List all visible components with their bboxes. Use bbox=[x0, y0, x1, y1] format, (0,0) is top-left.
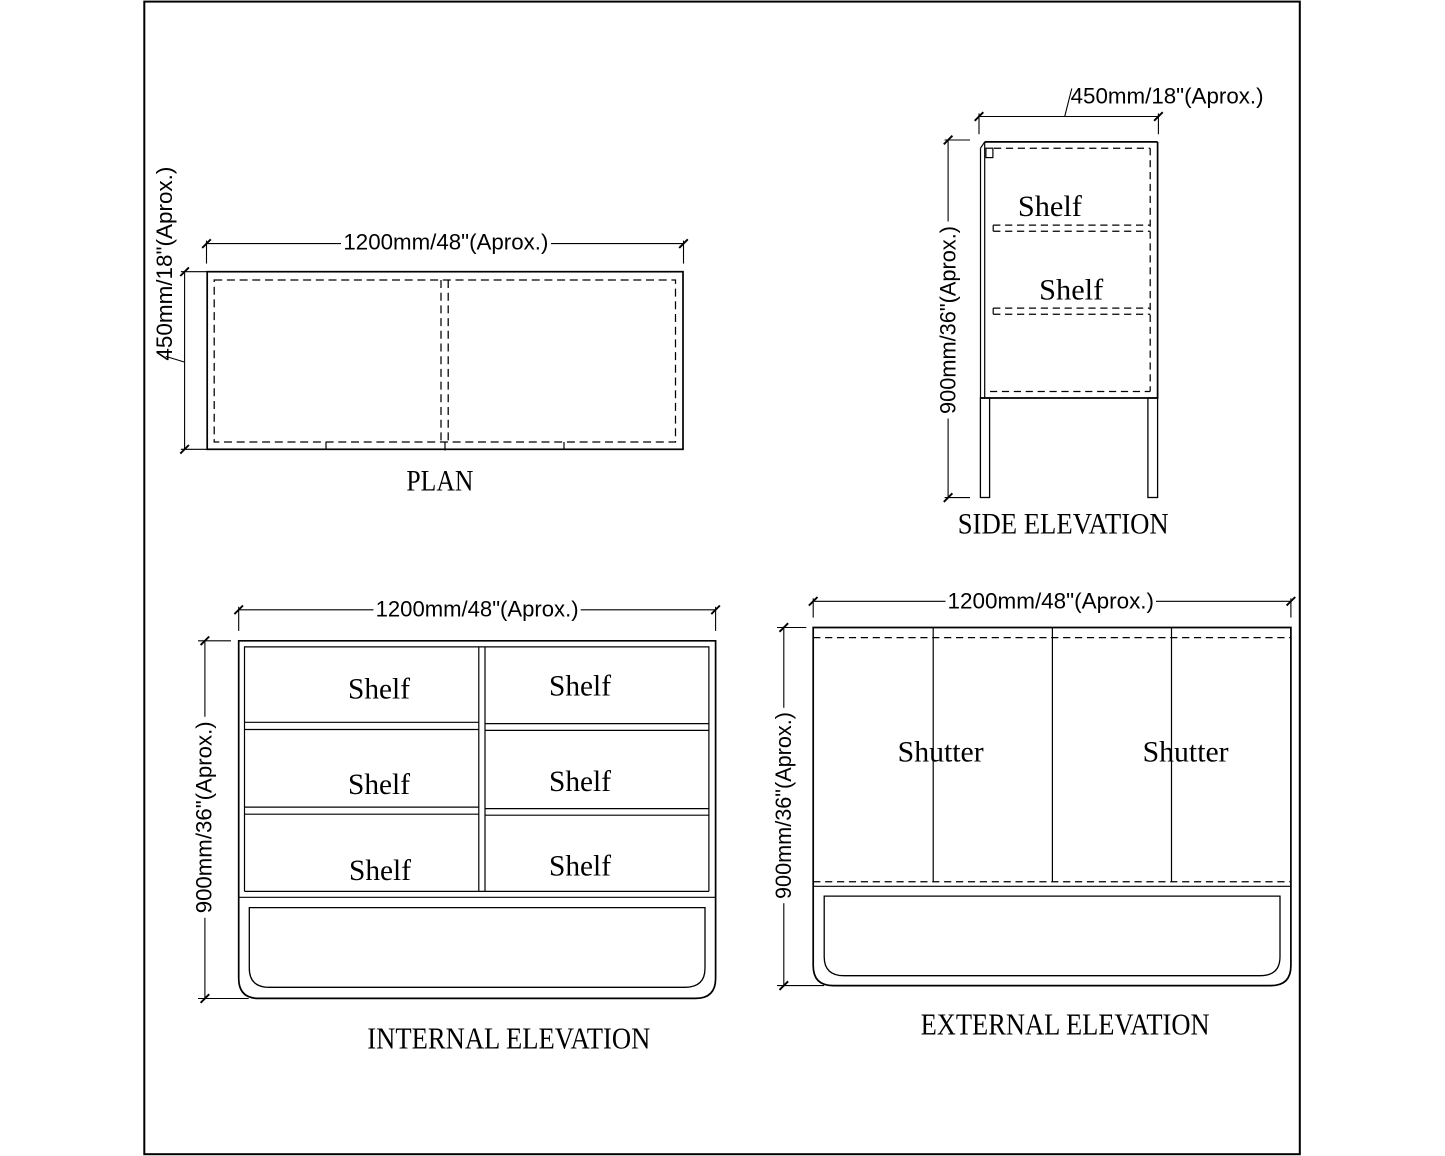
svg-text:450mm/18"(Aprox.): 450mm/18"(Aprox.) bbox=[1071, 84, 1264, 109]
svg-text:450mm/18"(Aprox.): 450mm/18"(Aprox.) bbox=[152, 167, 177, 361]
svg-text:SIDE ELEVATION: SIDE ELEVATION bbox=[958, 508, 1169, 541]
svg-text:900mm/36"(Aprox.): 900mm/36"(Aprox.) bbox=[771, 712, 796, 899]
svg-text:900mm/36"(Aprox.): 900mm/36"(Aprox.) bbox=[936, 226, 961, 414]
svg-text:INTERNAL ELEVATION: INTERNAL ELEVATION bbox=[367, 1020, 650, 1055]
svg-text:Shutter: Shutter bbox=[898, 737, 984, 769]
svg-text:Shelf: Shelf bbox=[349, 855, 411, 887]
svg-text:900mm/36"(Aprox.): 900mm/36"(Aprox.) bbox=[192, 721, 217, 913]
svg-text:Shelf: Shelf bbox=[1039, 275, 1103, 307]
svg-text:Shelf: Shelf bbox=[1018, 191, 1082, 223]
svg-text:PLAN: PLAN bbox=[406, 465, 473, 498]
svg-text:Shelf: Shelf bbox=[549, 766, 611, 798]
svg-text:Shelf: Shelf bbox=[348, 769, 410, 801]
svg-text:1200mm/48"(Aprox.): 1200mm/48"(Aprox.) bbox=[948, 588, 1155, 613]
svg-text:1200mm/48"(Aprox.): 1200mm/48"(Aprox.) bbox=[343, 230, 548, 255]
svg-text:Shelf: Shelf bbox=[348, 673, 410, 705]
svg-text:EXTERNAL ELEVATION: EXTERNAL ELEVATION bbox=[921, 1006, 1210, 1041]
svg-text:Shelf: Shelf bbox=[549, 851, 611, 883]
svg-text:Shutter: Shutter bbox=[1143, 737, 1229, 769]
svg-text:Shelf: Shelf bbox=[549, 671, 611, 703]
svg-text:1200mm/48"(Aprox.): 1200mm/48"(Aprox.) bbox=[376, 596, 579, 621]
